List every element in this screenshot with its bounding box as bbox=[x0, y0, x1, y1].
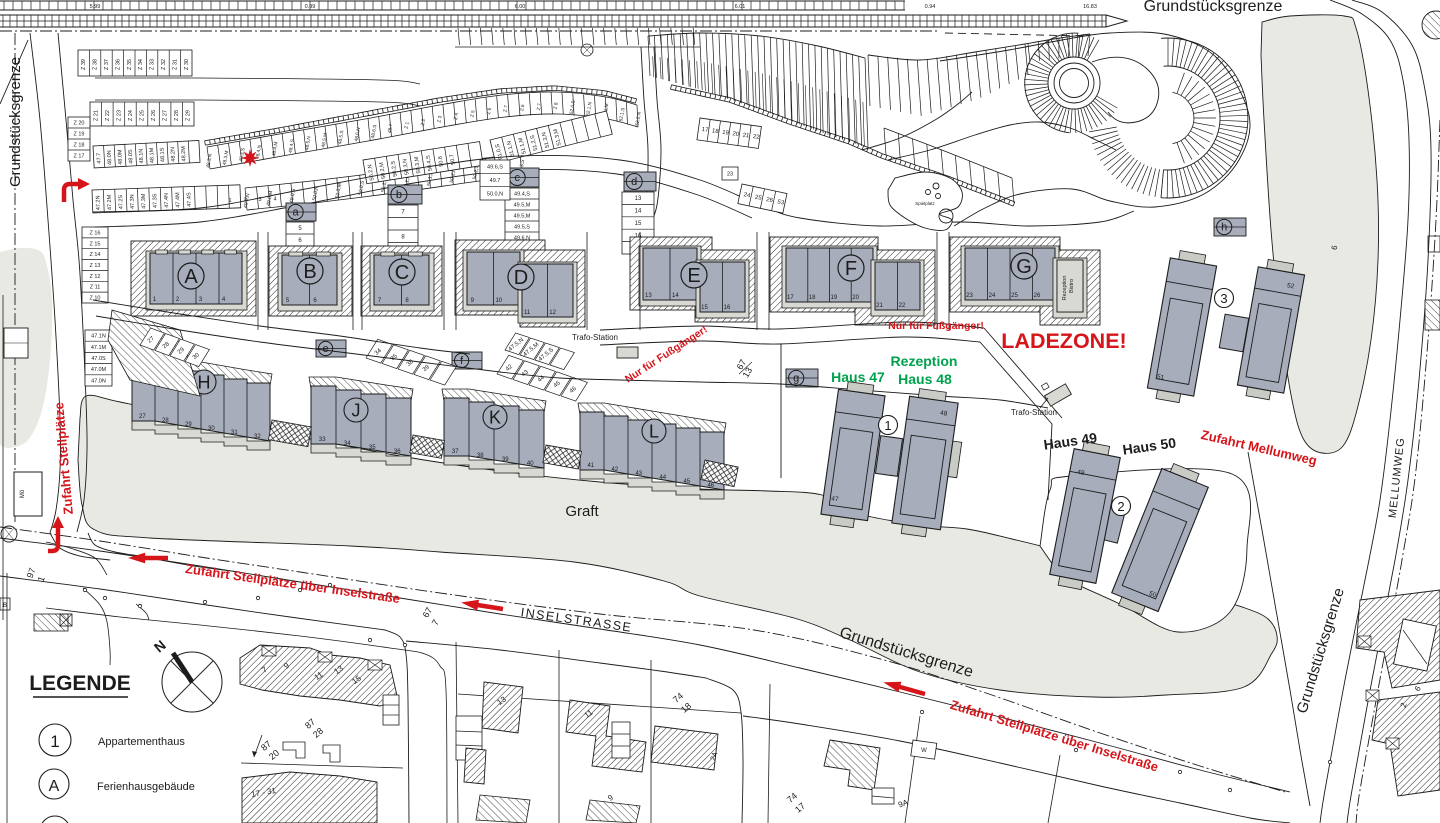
svg-text:Z 30: Z 30 bbox=[184, 59, 190, 70]
svg-text:Ferienhausgebäude: Ferienhausgebäude bbox=[97, 781, 195, 793]
svg-text:20: 20 bbox=[852, 295, 859, 301]
svg-text:Z 17: Z 17 bbox=[73, 154, 84, 160]
svg-text:36: 36 bbox=[394, 449, 401, 455]
svg-text:47.1M: 47.1M bbox=[91, 345, 107, 351]
svg-text:Z 21: Z 21 bbox=[93, 110, 99, 121]
svg-text:Z 23: Z 23 bbox=[116, 110, 122, 121]
svg-text:11: 11 bbox=[524, 310, 531, 316]
svg-text:6.01: 6.01 bbox=[735, 4, 746, 10]
svg-text:Z 14: Z 14 bbox=[89, 252, 100, 258]
svg-text:6.00: 6.00 bbox=[515, 4, 526, 10]
svg-text:18: 18 bbox=[809, 295, 816, 301]
svg-text:Rezeption: Rezeption bbox=[891, 353, 958, 369]
svg-text:e: e bbox=[323, 343, 329, 355]
svg-text:Grundstücksgrenze: Grundstücksgrenze bbox=[7, 57, 24, 187]
svg-text:2.6: 2.6 bbox=[519, 104, 526, 112]
svg-text:B: B bbox=[303, 261, 316, 283]
svg-text:B: B bbox=[3, 603, 7, 609]
svg-text:G: G bbox=[1016, 256, 1032, 278]
svg-text:47: 47 bbox=[831, 495, 840, 503]
svg-text:5.99: 5.99 bbox=[90, 4, 101, 10]
svg-text:A: A bbox=[184, 266, 198, 288]
svg-text:Z 20: Z 20 bbox=[73, 121, 84, 127]
svg-text:15: 15 bbox=[701, 305, 708, 311]
svg-text:28: 28 bbox=[162, 418, 169, 424]
svg-text:39: 39 bbox=[502, 457, 509, 463]
svg-text:Z 32: Z 32 bbox=[161, 59, 167, 70]
svg-text:12: 12 bbox=[549, 310, 556, 316]
svg-text:Z 39: Z 39 bbox=[81, 59, 87, 70]
svg-text:49.5,S: 49.5,S bbox=[514, 225, 530, 231]
svg-text:LADEZONE!: LADEZONE! bbox=[1001, 329, 1126, 353]
svg-text:c: c bbox=[514, 172, 520, 184]
svg-text:Z 12: Z 12 bbox=[89, 274, 100, 280]
svg-text:40: 40 bbox=[527, 461, 534, 467]
svg-text:h: h bbox=[1221, 222, 1227, 234]
svg-text:24: 24 bbox=[989, 293, 996, 299]
svg-text:Z 22: Z 22 bbox=[105, 110, 111, 121]
svg-text:48.2N: 48.2N bbox=[170, 147, 177, 162]
svg-text:48.0M: 48.0M bbox=[117, 149, 124, 165]
svg-text:16.83: 16.83 bbox=[1083, 4, 1097, 10]
svg-text:27: 27 bbox=[139, 414, 146, 420]
svg-text:A: A bbox=[49, 778, 60, 795]
svg-text:47.0M: 47.0M bbox=[91, 367, 107, 373]
svg-text:Bistro: Bistro bbox=[1069, 279, 1075, 293]
svg-text:Trafo-Station: Trafo-Station bbox=[572, 333, 618, 342]
svg-text:b: b bbox=[396, 189, 402, 201]
svg-text:J: J bbox=[352, 401, 361, 421]
svg-text:46: 46 bbox=[707, 483, 714, 489]
svg-text:49.6,S: 49.6,S bbox=[487, 165, 503, 171]
svg-text:21: 21 bbox=[876, 303, 883, 309]
svg-text:E: E bbox=[687, 265, 700, 287]
svg-text:Z 28: Z 28 bbox=[174, 110, 180, 121]
svg-text:Z 18: Z 18 bbox=[73, 143, 84, 149]
svg-text:34: 34 bbox=[344, 441, 351, 447]
svg-text:Z 19: Z 19 bbox=[73, 132, 84, 138]
svg-text:47.3N: 47.3N bbox=[130, 194, 137, 209]
svg-text:Z 15: Z 15 bbox=[89, 241, 100, 247]
svg-text:Z 5: Z 5 bbox=[469, 110, 476, 118]
svg-text:0.99: 0.99 bbox=[305, 4, 316, 10]
svg-text:47.4S: 47.4S bbox=[186, 192, 193, 207]
svg-text:Z 25: Z 25 bbox=[140, 110, 146, 121]
svg-text:Z 7: Z 7 bbox=[536, 103, 543, 111]
svg-text:32: 32 bbox=[254, 434, 261, 440]
svg-text:23: 23 bbox=[966, 293, 973, 299]
svg-text:1: 1 bbox=[884, 418, 891, 433]
svg-text:Haus 47: Haus 47 bbox=[831, 369, 885, 385]
svg-text:D: D bbox=[514, 267, 528, 289]
svg-text:49.4,S: 49.4,S bbox=[514, 192, 530, 198]
svg-text:44: 44 bbox=[659, 475, 666, 481]
svg-text:17: 17 bbox=[787, 295, 794, 301]
svg-text:48.1N: 48.1N bbox=[138, 148, 145, 163]
svg-text:31: 31 bbox=[231, 430, 238, 436]
svg-text:Z 16: Z 16 bbox=[89, 230, 100, 236]
svg-text:47.0S: 47.0S bbox=[91, 356, 106, 362]
svg-text:15: 15 bbox=[635, 221, 642, 227]
svg-text:3: 3 bbox=[1220, 291, 1227, 306]
svg-text:37: 37 bbox=[452, 449, 459, 455]
svg-text:Trafo-Station: Trafo-Station bbox=[1011, 408, 1057, 417]
svg-text:Z 8: Z 8 bbox=[553, 102, 560, 110]
svg-text:Nur für Fußgänger!: Nur für Fußgänger! bbox=[888, 320, 984, 332]
svg-text:47.2S: 47.2S bbox=[118, 194, 125, 209]
svg-text:48.0S: 48.0S bbox=[128, 149, 135, 164]
svg-text:Z 35: Z 35 bbox=[127, 59, 133, 70]
svg-text:L: L bbox=[649, 422, 659, 442]
svg-text:42: 42 bbox=[611, 467, 618, 473]
svg-text:19: 19 bbox=[831, 295, 838, 301]
svg-text:16: 16 bbox=[724, 305, 731, 311]
svg-text:Z 31: Z 31 bbox=[172, 59, 178, 70]
svg-text:49.5,M: 49.5,M bbox=[514, 214, 531, 220]
svg-text:Z 29: Z 29 bbox=[186, 110, 192, 121]
svg-text:47.2N: 47.2N bbox=[95, 195, 102, 210]
svg-text:2: 2 bbox=[1117, 499, 1124, 514]
svg-text:Spielplatz: Spielplatz bbox=[915, 201, 935, 206]
svg-text:Z 1: Z 1 bbox=[404, 121, 411, 129]
svg-text:35: 35 bbox=[369, 445, 376, 451]
svg-text:48.2M: 48.2M bbox=[181, 146, 188, 162]
svg-text:49.5,M: 49.5,M bbox=[514, 203, 531, 209]
svg-text:Haus 48: Haus 48 bbox=[898, 371, 952, 387]
svg-text:Z 3: Z 3 bbox=[436, 115, 443, 123]
svg-text:48.1M: 48.1M bbox=[149, 147, 156, 163]
svg-text:Z 7: Z 7 bbox=[502, 104, 509, 112]
svg-text:K: K bbox=[489, 408, 501, 428]
svg-text:48.0N: 48.0N bbox=[107, 150, 114, 165]
svg-text:Z 33: Z 33 bbox=[150, 59, 156, 70]
svg-text:13: 13 bbox=[645, 293, 652, 299]
svg-text:22: 22 bbox=[899, 303, 906, 309]
svg-text:47.1N: 47.1N bbox=[91, 334, 106, 340]
svg-text:Z 26: Z 26 bbox=[151, 110, 157, 121]
svg-text:33: 33 bbox=[319, 437, 326, 443]
svg-text:47.4N: 47.4N bbox=[164, 193, 171, 208]
svg-text:45: 45 bbox=[683, 479, 690, 485]
svg-text:Z 36: Z 36 bbox=[115, 59, 121, 70]
svg-text:W: W bbox=[921, 748, 927, 754]
svg-text:g: g bbox=[793, 373, 799, 385]
svg-text:14: 14 bbox=[635, 209, 642, 215]
svg-text:F: F bbox=[845, 258, 857, 280]
svg-text:10: 10 bbox=[495, 298, 502, 304]
svg-text:a: a bbox=[293, 207, 300, 219]
svg-text:48: 48 bbox=[940, 410, 949, 418]
svg-text:LEGENDE: LEGENDE bbox=[29, 672, 131, 695]
svg-text:Z 24: Z 24 bbox=[128, 110, 134, 121]
svg-text:Rezeption: Rezeption bbox=[1062, 276, 1068, 301]
svg-text:48.1S: 48.1S bbox=[160, 147, 167, 162]
svg-text:Z 27: Z 27 bbox=[163, 110, 169, 121]
svg-text:d: d bbox=[631, 176, 637, 188]
svg-text:26: 26 bbox=[1034, 293, 1041, 299]
svg-text:29: 29 bbox=[185, 422, 192, 428]
svg-text:1: 1 bbox=[50, 732, 59, 751]
svg-text:Z 34: Z 34 bbox=[138, 59, 144, 70]
svg-text:Z 13: Z 13 bbox=[89, 263, 100, 269]
svg-text:4: 4 bbox=[273, 197, 276, 203]
svg-text:41: 41 bbox=[587, 463, 594, 469]
svg-text:Graft: Graft bbox=[565, 503, 599, 520]
svg-text:H: H bbox=[198, 373, 211, 393]
svg-text:47.3S: 47.3S bbox=[152, 193, 159, 208]
svg-text:49.7: 49.7 bbox=[490, 178, 501, 184]
svg-text:25: 25 bbox=[1011, 293, 1018, 299]
svg-text:Appartementhaus: Appartementhaus bbox=[98, 736, 185, 748]
svg-text:47.0N: 47.0N bbox=[91, 378, 106, 384]
svg-text:Z 11: Z 11 bbox=[90, 285, 101, 291]
svg-text:Z 6: Z 6 bbox=[486, 107, 493, 115]
svg-text:23: 23 bbox=[727, 172, 733, 178]
svg-text:47.7: 47.7 bbox=[96, 153, 103, 164]
svg-text:14: 14 bbox=[672, 293, 679, 299]
svg-text:Z 38: Z 38 bbox=[93, 59, 99, 70]
svg-text:38: 38 bbox=[477, 453, 484, 459]
svg-text:47.4M: 47.4M bbox=[175, 192, 182, 208]
svg-text:43: 43 bbox=[635, 471, 642, 477]
svg-text:Mö: Mö bbox=[20, 489, 26, 498]
svg-text:13: 13 bbox=[635, 196, 642, 202]
svg-text:Grundstücksgrenze: Grundstücksgrenze bbox=[1144, 0, 1283, 15]
svg-text:Z 2: Z 2 bbox=[420, 118, 427, 126]
svg-text:30: 30 bbox=[208, 426, 215, 432]
svg-text:Z 4: Z 4 bbox=[453, 112, 460, 120]
svg-text:Z 37: Z 37 bbox=[104, 59, 110, 70]
svg-text:47.3M: 47.3M bbox=[141, 193, 148, 209]
svg-text:C: C bbox=[395, 262, 409, 284]
svg-text:50.0,N: 50.0,N bbox=[487, 191, 503, 197]
svg-text:0.94: 0.94 bbox=[925, 4, 936, 10]
svg-text:47.2M: 47.2M bbox=[107, 194, 114, 210]
